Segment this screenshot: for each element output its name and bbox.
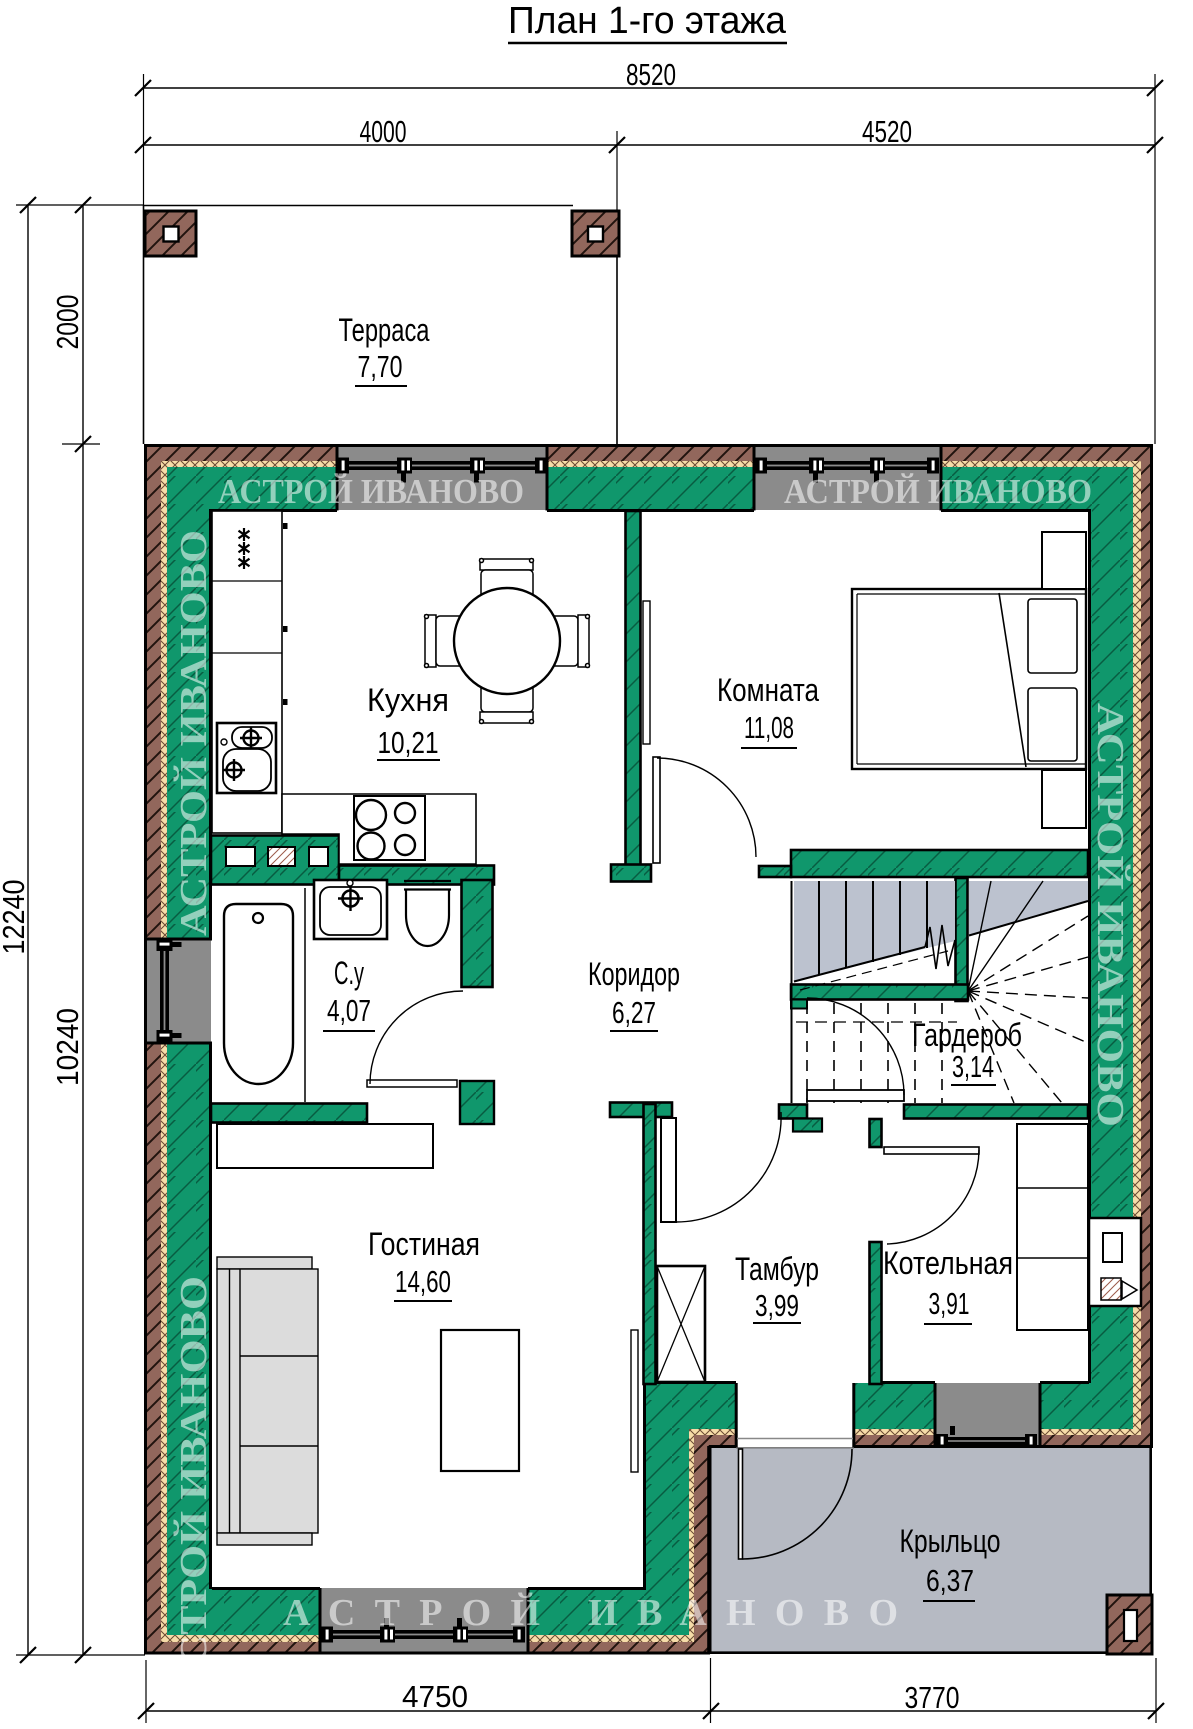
svg-text:Гардероб: Гардероб xyxy=(912,1017,1022,1053)
svg-text:3,91: 3,91 xyxy=(929,1286,970,1321)
svg-text:АСТРОЙ ИВАНОВО: АСТРОЙ ИВАНОВО xyxy=(173,1276,215,1696)
svg-text:АСТРОЙ ИВАНОВО: АСТРОЙ ИВАНОВО xyxy=(218,472,524,511)
svg-text:С.у: С.у xyxy=(334,955,364,991)
svg-text:АСТРОЙ ИВАНОВО: АСТРОЙ ИВАНОВО xyxy=(1089,703,1131,1127)
svg-text:3,99: 3,99 xyxy=(755,1288,799,1323)
svg-text:4520: 4520 xyxy=(862,114,912,149)
svg-text:2000: 2000 xyxy=(50,295,85,350)
svg-text:План 1-го этажа: План 1-го этажа xyxy=(508,0,787,42)
svg-text:8520: 8520 xyxy=(626,57,676,92)
svg-text:12240: 12240 xyxy=(0,880,31,955)
svg-text:Котельная: Котельная xyxy=(883,1245,1013,1281)
svg-text:Гостиная: Гостиная xyxy=(368,1226,480,1262)
svg-text:Тамбур: Тамбур xyxy=(735,1251,819,1287)
svg-text:Кухня: Кухня xyxy=(367,682,449,718)
svg-text:Коридор: Коридор xyxy=(588,956,680,992)
svg-text:7,70: 7,70 xyxy=(358,349,403,384)
svg-text:10,21: 10,21 xyxy=(378,725,439,760)
svg-text:3770: 3770 xyxy=(905,1680,960,1715)
svg-text:Крыльцо: Крыльцо xyxy=(900,1523,1001,1559)
svg-text:4,07: 4,07 xyxy=(327,993,371,1028)
svg-text:АСТРОЙ ИВАНОВО: АСТРОЙ ИВАНОВО xyxy=(173,530,215,936)
svg-text:Комната: Комната xyxy=(717,672,819,708)
svg-text:11,08: 11,08 xyxy=(744,710,794,745)
svg-text:3,14: 3,14 xyxy=(952,1049,994,1084)
svg-text:6,27: 6,27 xyxy=(612,995,656,1030)
svg-text:Терраса: Терраса xyxy=(339,312,430,348)
svg-text:4000: 4000 xyxy=(360,114,407,149)
svg-text:АСТРОЙ ИВАНОВО: АСТРОЙ ИВАНОВО xyxy=(784,472,1092,511)
svg-text:6,37: 6,37 xyxy=(926,1563,974,1598)
svg-text:4750: 4750 xyxy=(402,1679,468,1714)
svg-text:10240: 10240 xyxy=(50,1008,85,1086)
svg-text:14,60: 14,60 xyxy=(395,1264,451,1299)
